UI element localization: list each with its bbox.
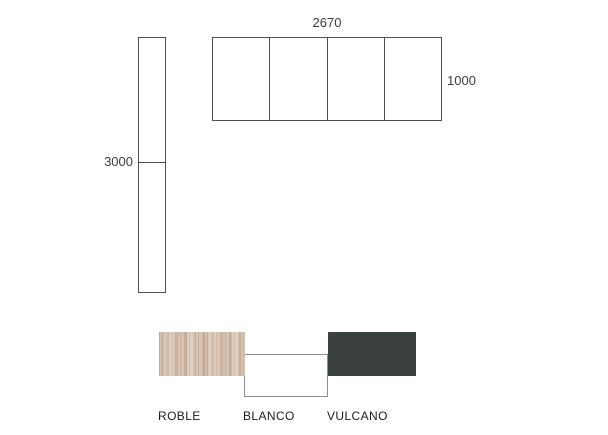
finish-swatch-vulcano xyxy=(328,332,416,376)
door-panel-2 xyxy=(270,38,327,120)
door-panel-1 xyxy=(213,38,270,120)
side-unit-divider xyxy=(139,162,165,163)
door-panel-4 xyxy=(385,38,441,120)
product-dimension-diagram: 2670 1000 3000 ROBLE BLANCO VULCANO xyxy=(0,0,608,435)
side-unit-outline xyxy=(138,37,166,293)
side-unit-height-dimension: 3000 xyxy=(93,155,133,169)
finish-label-blanco: BLANCO xyxy=(243,410,295,423)
finish-label-roble: ROBLE xyxy=(158,410,201,423)
top-unit-width-dimension: 2670 xyxy=(212,16,442,30)
door-panel-3 xyxy=(328,38,385,120)
finish-swatch-roble xyxy=(159,332,245,376)
finish-swatch-blanco xyxy=(244,354,328,397)
top-unit-height-dimension: 1000 xyxy=(447,74,476,88)
top-unit-outline xyxy=(212,37,442,121)
finish-label-vulcano: VULCANO xyxy=(327,410,388,423)
